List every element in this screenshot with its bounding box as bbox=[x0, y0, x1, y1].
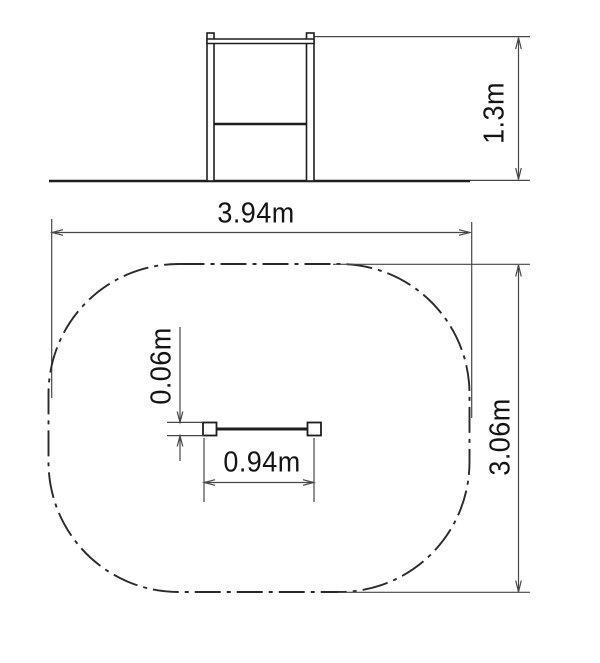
bar-thickness-dimension-label: 0.06m bbox=[148, 327, 177, 404]
elevation-view bbox=[49, 33, 530, 181]
plan-post-left bbox=[203, 423, 217, 436]
technical-drawing-page: 1.3m 3.94m 3.06m 0.06m 0.94m bbox=[0, 0, 600, 663]
zone-width-dimension-label: 3.94m bbox=[217, 200, 294, 229]
zone-depth-dimension-label: 3.06m bbox=[487, 398, 516, 475]
height-dimension-label: 1.3m bbox=[481, 82, 510, 144]
elevation-top-bar bbox=[207, 39, 314, 44]
bar-length-dimension-label: 0.94m bbox=[223, 449, 300, 478]
plan-view bbox=[49, 219, 531, 592]
elevation-post-right bbox=[307, 33, 315, 181]
elevation-post-left bbox=[207, 33, 214, 181]
plan-post-right bbox=[308, 423, 322, 436]
